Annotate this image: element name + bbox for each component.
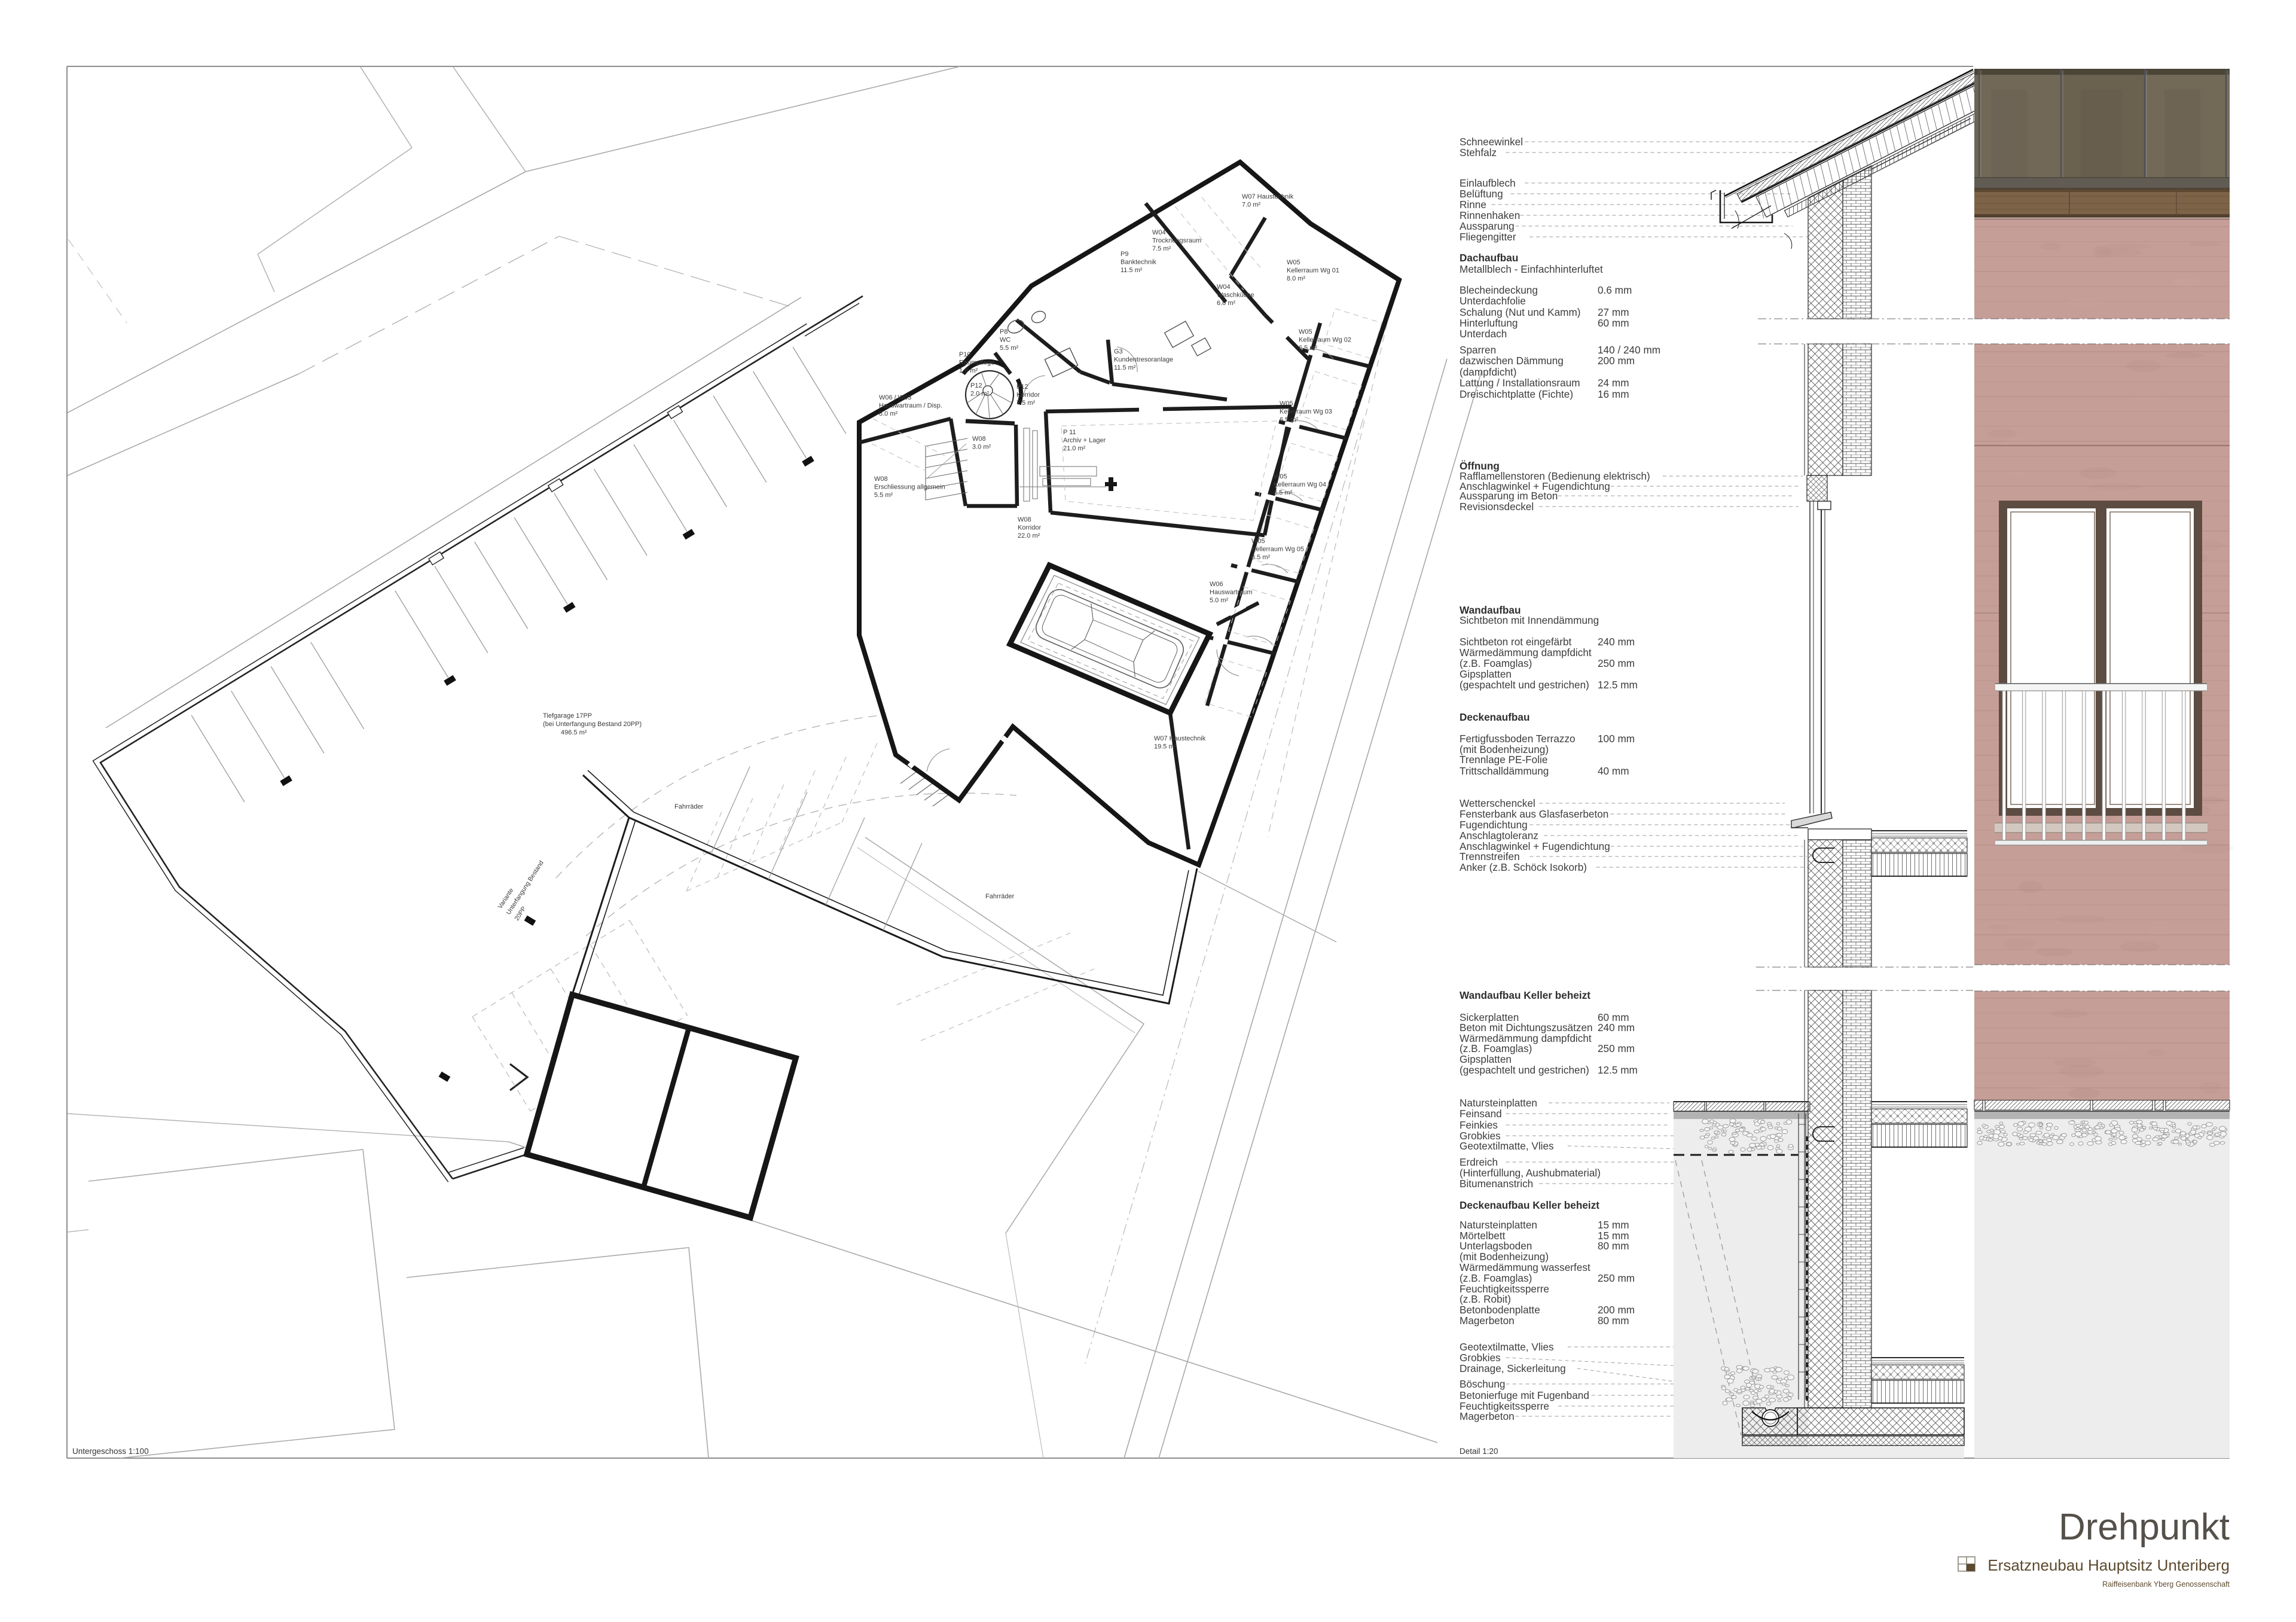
svg-text:8.0 m²: 8.0 m² (1287, 275, 1306, 282)
svg-text:Trittschalldämmung: Trittschalldämmung (1460, 765, 1549, 777)
svg-text:(gespachtelt und gestrichen): (gespachtelt und gestrichen) (1460, 1064, 1589, 1076)
svg-text:12.5 mm: 12.5 mm (1598, 1064, 1638, 1076)
svg-text:15 mm: 15 mm (1598, 1219, 1629, 1231)
svg-text:Wärmedämmung wasserfest: Wärmedämmung wasserfest (1460, 1261, 1590, 1273)
svg-text:Wetterschenckel: Wetterschenckel (1460, 797, 1535, 809)
svg-text:250 mm: 250 mm (1598, 1042, 1635, 1054)
svg-text:5.5 m²: 5.5 m² (1000, 344, 1019, 352)
svg-text:Unterdach: Unterdach (1460, 328, 1507, 340)
svg-text:Fahrräder: Fahrräder (985, 893, 1015, 900)
svg-text:5.0 m²: 5.0 m² (1210, 597, 1229, 604)
svg-text:5.5 m²: 5.5 m² (874, 492, 893, 499)
svg-text:W07 Haustechnik: W07 Haustechnik (1154, 735, 1206, 742)
svg-text:40 mm: 40 mm (1598, 765, 1629, 777)
svg-text:W05: W05 (1274, 473, 1287, 480)
svg-text:Natursteinplatten: Natursteinplatten (1460, 1219, 1537, 1231)
svg-text:Wärmedämmung dampfdicht: Wärmedämmung dampfdicht (1460, 647, 1592, 658)
svg-text:Korridor: Korridor (1018, 525, 1041, 532)
svg-text:6.0 m²: 6.0 m² (1217, 300, 1236, 307)
svg-text:Tiefgarage 17PP: Tiefgarage 17PP (543, 712, 592, 719)
svg-text:Wandaufbau Keller beheizt: Wandaufbau Keller beheizt (1460, 989, 1590, 1001)
svg-text:7.0 m²: 7.0 m² (1242, 202, 1261, 209)
svg-text:Untergeschoss 1:100: Untergeschoss 1:100 (72, 1447, 149, 1456)
svg-text:Archiv + Lager: Archiv + Lager (1063, 437, 1106, 444)
svg-text:W04: W04 (1217, 283, 1231, 291)
svg-text:240 mm: 240 mm (1598, 636, 1635, 648)
svg-text:(Hinterfüllung, Aushubmaterial: (Hinterfüllung, Aushubmaterial) (1460, 1167, 1601, 1179)
svg-text:6.5 m²: 6.5 m² (1274, 489, 1293, 496)
svg-text:6.5 m²: 6.5 m² (1299, 344, 1318, 352)
svg-text:W05: W05 (1287, 259, 1300, 266)
svg-text:Kundentresoranlage: Kundentresoranlage (1114, 356, 1173, 364)
svg-text:Dachaufbau: Dachaufbau (1460, 252, 1518, 264)
svg-text:W05: W05 (1251, 538, 1265, 545)
svg-text:Korridor: Korridor (1016, 392, 1040, 399)
svg-text:W08: W08 (972, 435, 986, 443)
svg-text:P9: P9 (1120, 251, 1128, 258)
svg-text:Gipsplatten: Gipsplatten (1460, 1053, 1512, 1065)
svg-text:240 mm: 240 mm (1598, 1022, 1635, 1033)
svg-text:Aussparung im Beton: Aussparung im Beton (1460, 490, 1558, 502)
svg-text:Lattung / Installationsraum: Lattung / Installationsraum (1460, 377, 1580, 389)
svg-text:(gespachtelt und gestrichen): (gespachtelt und gestrichen) (1460, 679, 1589, 691)
svg-text:Fahrräder: Fahrräder (674, 803, 704, 810)
svg-text:Feinsand: Feinsand (1460, 1108, 1502, 1120)
svg-text:Natursteinplatten: Natursteinplatten (1460, 1097, 1537, 1109)
svg-text:Deckenaufbau: Deckenaufbau (1460, 711, 1529, 723)
svg-text:P12: P12 (1016, 383, 1028, 391)
svg-text:Kellerraum Wg 02: Kellerraum Wg 02 (1299, 337, 1351, 344)
svg-text:7.5 m²: 7.5 m² (1152, 245, 1171, 252)
svg-text:(z.B. Foamglas): (z.B. Foamglas) (1460, 1272, 1532, 1284)
svg-text:Dreischichtplatte (Fichte): Dreischichtplatte (Fichte) (1460, 388, 1573, 400)
svg-text:60 mm: 60 mm (1598, 317, 1629, 329)
svg-text:100 mm: 100 mm (1598, 733, 1635, 745)
svg-text:Detail 1:20: Detail 1:20 (1460, 1447, 1498, 1456)
svg-text:Raumpflege: Raumpflege (959, 359, 994, 367)
svg-text:(z.B. Foamglas): (z.B. Foamglas) (1460, 1042, 1532, 1054)
svg-text:Banktechnik: Banktechnik (1120, 259, 1156, 266)
svg-text:8.0 m²: 8.0 m² (879, 410, 898, 417)
svg-text:Kellerraum Wg 05: Kellerraum Wg 05 (1251, 546, 1304, 553)
svg-text:dazwischen Dämmung: dazwischen Dämmung (1460, 355, 1564, 367)
svg-text:Drainage, Sickerleitung: Drainage, Sickerleitung (1460, 1362, 1566, 1374)
svg-text:Magerbeton: Magerbeton (1460, 1410, 1515, 1422)
svg-text:W04: W04 (1152, 229, 1166, 236)
svg-text:16 mm: 16 mm (1598, 388, 1629, 400)
svg-text:22.0 m²: 22.0 m² (1018, 532, 1040, 539)
svg-text:Stehfalz: Stehfalz (1460, 147, 1497, 158)
svg-text:Einlaufblech: Einlaufblech (1460, 177, 1516, 189)
svg-text:0.6 mm: 0.6 mm (1598, 284, 1632, 296)
svg-text:6.5 m²: 6.5 m² (1251, 554, 1271, 561)
svg-text:Erdreich: Erdreich (1460, 1156, 1498, 1168)
svg-text:Geotextilmatte, Vlies: Geotextilmatte, Vlies (1460, 1140, 1554, 1152)
svg-text:P 11: P 11 (1063, 429, 1076, 436)
svg-text:Feinkies: Feinkies (1460, 1119, 1498, 1131)
svg-text:(dampfdicht): (dampfdicht) (1460, 366, 1517, 378)
svg-text:250 mm: 250 mm (1598, 1272, 1635, 1284)
svg-text:Aussparung: Aussparung (1460, 220, 1515, 232)
svg-text:G3: G3 (1114, 348, 1123, 355)
svg-text:19.5 m²: 19.5 m² (1154, 743, 1177, 751)
svg-text:21.0 m²: 21.0 m² (1063, 445, 1086, 452)
svg-text:W05: W05 (1299, 328, 1312, 336)
svg-text:2.0 m²: 2.0 m² (970, 391, 990, 398)
svg-text:Trennstreifen: Trennstreifen (1460, 850, 1520, 862)
svg-text:Raiffeisenbank Yberg Genossens: Raiffeisenbank Yberg Genossenschaft (2102, 1580, 2230, 1589)
svg-text:Unterdachfolie: Unterdachfolie (1460, 295, 1526, 307)
svg-text:Schalung (Nut und Kamm): Schalung (Nut und Kamm) (1460, 306, 1581, 318)
svg-text:(mit Bodenheizung): (mit Bodenheizung) (1460, 1251, 1549, 1263)
svg-text:6.5 m²: 6.5 m² (1280, 416, 1299, 423)
svg-text:Unterlagsboden: Unterlagsboden (1460, 1240, 1532, 1252)
svg-text:Fliegengitter: Fliegengitter (1460, 231, 1516, 243)
svg-text:Trocknungsraum: Trocknungsraum (1152, 237, 1201, 245)
svg-text:Kellerraum Wg 01: Kellerraum Wg 01 (1287, 267, 1339, 275)
svg-text:Erschliessung allgemein: Erschliessung allgemein (874, 484, 945, 491)
svg-text:140 / 240 mm: 140 / 240 mm (1598, 344, 1660, 356)
svg-text:Kellerraum Wg 03: Kellerraum Wg 03 (1280, 408, 1332, 416)
svg-text:Betonierfuge mit Fugenband: Betonierfuge mit Fugenband (1460, 1389, 1589, 1401)
svg-text:24 mm: 24 mm (1598, 377, 1629, 389)
svg-text:Deckenaufbau Keller beheizt: Deckenaufbau Keller beheizt (1460, 1199, 1599, 1211)
svg-text:Revisionsdeckel: Revisionsdeckel (1460, 501, 1534, 513)
svg-text:W05: W05 (1280, 400, 1293, 407)
svg-text:(z.B. Foamglas): (z.B. Foamglas) (1460, 657, 1532, 669)
svg-text:W06: W06 (1210, 581, 1223, 588)
svg-text:Hauswartraum: Hauswartraum (1210, 589, 1253, 596)
svg-text:Gipsplatten: Gipsplatten (1460, 668, 1512, 680)
svg-text:Magerbeton: Magerbeton (1460, 1315, 1515, 1327)
svg-text:11.5 m²: 11.5 m² (1114, 364, 1136, 371)
svg-text:W08: W08 (1018, 516, 1031, 523)
svg-text:Rinne: Rinne (1460, 199, 1486, 211)
svg-text:11.5 m²: 11.5 m² (1120, 267, 1143, 274)
svg-text:Fugendichtung: Fugendichtung (1460, 819, 1528, 831)
svg-text:Anker (z.B. Schöck Isokorb): Anker (z.B. Schöck Isokorb) (1460, 861, 1587, 873)
svg-text:80 mm: 80 mm (1598, 1240, 1629, 1252)
svg-text:1.5 m²: 1.5 m² (959, 367, 978, 374)
svg-text:12.5 mm: 12.5 mm (1598, 679, 1638, 691)
svg-text:Schneewinkel: Schneewinkel (1460, 136, 1523, 148)
svg-text:P8: P8 (1000, 328, 1007, 336)
svg-text:200 mm: 200 mm (1598, 1304, 1635, 1316)
svg-text:Fertigfussboden Terrazzo: Fertigfussboden Terrazzo (1460, 733, 1576, 745)
svg-text:27 mm: 27 mm (1598, 306, 1629, 318)
svg-text:496.5 m²: 496.5 m² (561, 729, 587, 736)
svg-text:(z.B. Robit): (z.B. Robit) (1460, 1293, 1511, 1305)
svg-text:Böschung: Böschung (1460, 1378, 1505, 1390)
svg-text:Hinterluftung: Hinterluftung (1460, 317, 1518, 329)
svg-text:Belüftung: Belüftung (1460, 188, 1503, 200)
svg-text:Beton mit Dichtungszusätzen: Beton mit Dichtungszusätzen (1460, 1022, 1593, 1033)
svg-text:Grobkies: Grobkies (1460, 1352, 1501, 1364)
svg-text:Geotextilmatte, Vlies: Geotextilmatte, Vlies (1460, 1341, 1554, 1353)
svg-text:W07 Haustechnik: W07 Haustechnik (1242, 193, 1294, 200)
svg-text:Hauswartraum / Disp.: Hauswartraum / Disp. (879, 403, 942, 410)
svg-text:200 mm: 200 mm (1598, 355, 1635, 367)
svg-text:P12: P12 (970, 382, 982, 389)
svg-text:Fensterbank aus Glasfaserbeton: Fensterbank aus Glasfaserbeton (1460, 808, 1608, 820)
svg-text:W08: W08 (874, 475, 888, 483)
svg-text:W06 / W03: W06 / W03 (879, 394, 911, 401)
svg-text:Waschküche: Waschküche (1217, 292, 1254, 299)
svg-text:P10: P10 (959, 351, 971, 358)
svg-text:Blecheindeckung: Blecheindeckung (1460, 284, 1538, 296)
svg-text:3.0 m²: 3.0 m² (972, 444, 991, 451)
svg-text:Ersatzneubau Hauptsitz Unterib: Ersatzneubau Hauptsitz Unteriberg (1987, 1556, 2230, 1574)
svg-text:80 mm: 80 mm (1598, 1315, 1629, 1327)
svg-text:(bei Unterfangung Bestand 20PP: (bei Unterfangung Bestand 20PP) (543, 721, 642, 728)
svg-text:250 mm: 250 mm (1598, 657, 1635, 669)
svg-text:Anschlagtoleranz: Anschlagtoleranz (1460, 830, 1538, 842)
svg-text:Sichtbeton mit Innendämmung: Sichtbeton mit Innendämmung (1460, 614, 1599, 626)
svg-text:Metallblech - Einfachhinterluf: Metallblech - Einfachhinterluftet (1460, 263, 1603, 275)
svg-text:Sichtbeton rot eingefärbt: Sichtbeton rot eingefärbt (1460, 636, 1571, 648)
svg-text:Rinnenhaken: Rinnenhaken (1460, 209, 1520, 221)
svg-text:7.5 m²: 7.5 m² (1016, 400, 1036, 407)
svg-text:Sparren: Sparren (1460, 344, 1496, 356)
svg-text:Betonbodenplatte: Betonbodenplatte (1460, 1304, 1540, 1316)
svg-text:Drehpunkt: Drehpunkt (2059, 1507, 2230, 1548)
svg-text:Bitumenanstrich: Bitumenanstrich (1460, 1178, 1533, 1190)
svg-text:Kellerraum Wg 04: Kellerraum Wg 04 (1274, 481, 1326, 489)
svg-text:WC: WC (1000, 337, 1010, 344)
svg-text:Trennlage PE-Folie: Trennlage PE-Folie (1460, 754, 1547, 766)
